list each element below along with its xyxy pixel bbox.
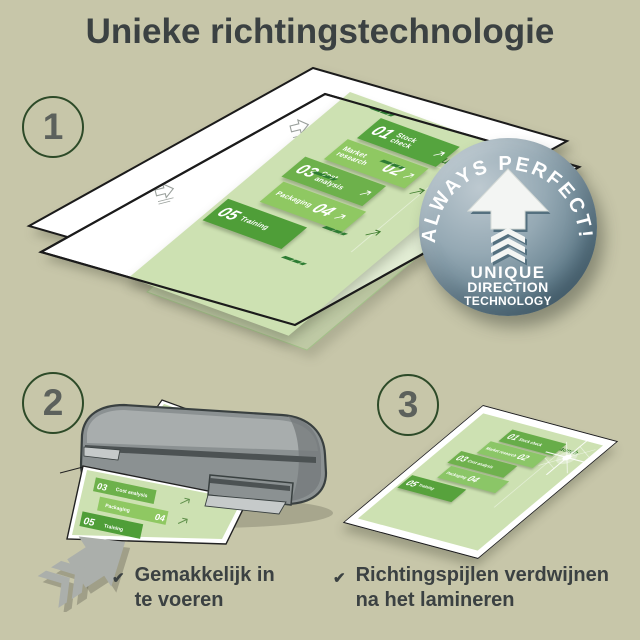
badge-line-direction: DIRECTION [467,279,549,295]
caption-line: Richtingspijlen verdwijnen [356,563,609,588]
always-perfect-badge: ALWAYS PERFECT! UNIQUE DIRECTION TECHNOL… [419,138,597,316]
svg-text:03: 03 [96,481,108,493]
band-label: Training [237,216,270,231]
caption-arrows-disappear: ✔ Richtingspijlen verdwijnen na het lami… [333,563,609,613]
check-icon: ✔ [112,566,125,613]
infographic: Unieke richtingstechnologie 1 Launch 01 [0,0,640,640]
caption-line: Gemakkelijk in [135,563,275,588]
badge-graphic: ALWAYS PERFECT! UNIQUE DIRECTION TECHNOL… [419,138,597,316]
badge-line-technology: TECHNOLOGY [464,294,552,308]
caption-line: te voeren [135,588,275,613]
caption-easy-feed: ✔ Gemakkelijk in te voeren [112,563,275,613]
direction-arrow-icon [400,171,416,181]
direction-arrow-icon [331,211,349,222]
band-label: Market research [334,146,386,171]
caption-line: na het lamineren [356,588,609,613]
pouch-edge-line [60,467,83,473]
pouch-print-mark [281,256,307,265]
svg-text:04: 04 [154,512,166,524]
pouch-print-mark [369,107,395,116]
band-label: Packaging [273,191,314,209]
direction-arrow-icon [357,188,374,198]
check-icon: ✔ [333,566,346,613]
